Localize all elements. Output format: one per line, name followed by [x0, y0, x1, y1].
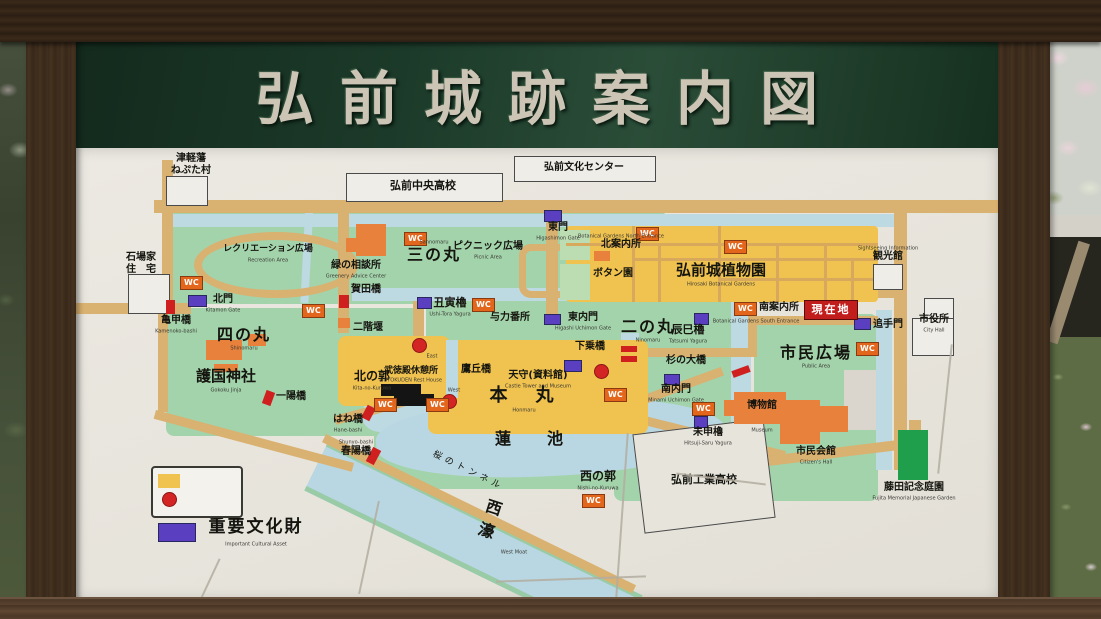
greenery-center-building: [356, 224, 386, 256]
nikaizeki-marker: [338, 318, 350, 328]
greenery-center-building: [346, 238, 358, 252]
sublabel-kamenokobashi: Kamenoko-bashi: [155, 328, 197, 334]
bridge-marker-gejobashi: [621, 346, 637, 352]
label-gejobashi: 下乗橋: [575, 341, 605, 353]
sublabel-museum: Museum: [751, 427, 772, 433]
sublabel-citizens-hall: Citizen's Hall: [800, 459, 833, 465]
sublabel-greenery-center: Greenery Advice Center: [326, 273, 386, 279]
sublabel-west-booth: West: [448, 387, 460, 393]
sublabel-hitsujisaru: Hitsuji-Saru Yagura: [684, 440, 732, 446]
label-higashimon: 東門: [548, 222, 568, 234]
wc-marker: WC: [426, 398, 449, 412]
label-hitsujisaru: 未申櫓: [693, 427, 723, 439]
label-otemon: 追手門: [873, 319, 903, 331]
sublabel-gokoku-shrine: Gokoku Jinja: [211, 387, 242, 393]
photo-of-map-sign: 弘前城跡案内図: [0, 0, 1101, 619]
legend-ticket-swatch: [162, 492, 177, 507]
wc-marker: WC: [856, 342, 879, 356]
sublabel-shinomaru: Shinomaru: [230, 345, 257, 351]
museum-building: [724, 400, 738, 416]
label-ichiyobashi: 一陽橋: [276, 391, 306, 403]
sublabel-kitamon: Kitamon Gate: [206, 307, 241, 313]
sign-title: 弘前城跡案内図: [230, 52, 844, 136]
sublabel-honmaru: Honmaru: [512, 407, 535, 413]
wc-marker: WC: [604, 388, 627, 402]
wc-marker: WC: [472, 298, 495, 312]
sublabel-ushitora: Ushi-Tora Yagura: [429, 311, 470, 317]
bridge-marker-kamenoko: [166, 300, 175, 314]
sublabel-west-moat: West Moat: [501, 549, 527, 555]
wood-beam-bottom: [0, 597, 1101, 619]
bridge-marker-gejobashi: [621, 356, 637, 362]
sublabel-picnic: Picnic Area: [474, 254, 502, 260]
panel-crack: [937, 344, 953, 473]
wc-marker: WC: [734, 302, 757, 316]
label-ushitora: 丑寅櫓: [434, 297, 467, 310]
label-tatsumi: 辰巳櫓: [672, 324, 705, 337]
road-top: [154, 200, 998, 213]
wc-marker: WC: [180, 276, 203, 290]
label-public-square: 市民広場: [780, 344, 852, 362]
wc-marker: WC: [582, 494, 605, 508]
label-shinomaru: 四の丸: [217, 326, 271, 344]
label-higashi-uchimon: 東内門: [568, 312, 598, 324]
cherry-blossoms: [1046, 28, 1101, 218]
label-museum: 博物館: [747, 400, 777, 412]
wc-marker: WC: [692, 402, 715, 416]
label-tenshu: 天守(資料館): [508, 370, 567, 382]
citizens-hall-building: [820, 406, 848, 432]
gate-marker-higashi-uchimon: [544, 314, 561, 325]
neputa-village-box: [166, 176, 208, 206]
label-nishinokuruwa: 西の郭: [580, 470, 616, 484]
gate-marker-higashimon: [544, 210, 562, 222]
garden-path: [776, 244, 779, 302]
legend-cultural-label: 重要文化財: [209, 518, 304, 538]
label-kadabashi: 賀田橋: [351, 284, 381, 296]
label-greenery-center: 緑の相談所: [331, 260, 381, 272]
label-nikaizeki: 二階堰: [353, 322, 383, 334]
garden-path: [824, 244, 827, 302]
background-grass: [1046, 337, 1101, 619]
wc-marker: WC: [724, 240, 747, 254]
background-structure-edge: [1046, 215, 1101, 237]
label-shunyobashi: 春陽橋: [341, 446, 371, 458]
bridge-marker-kadabashi: [339, 295, 349, 308]
sublabel-public-square: Public Area: [802, 363, 830, 369]
wood-post-left: [26, 30, 76, 619]
sublabel-recreation: Recreation Area: [248, 257, 288, 263]
label-minami-uchimon: 南内門: [661, 384, 691, 396]
label-north-info: 北案内所: [601, 239, 641, 251]
label-citizens-hall: 市民会館: [796, 446, 836, 458]
label-butokuden: 武徳殿休憩所: [384, 366, 438, 376]
sublabel-hanebashi: Hane-bashi: [334, 427, 363, 433]
label-hanebashi: はね橋: [333, 414, 363, 426]
title-banner: 弘前城跡案内図: [76, 40, 998, 148]
label-cityhall: 市役所: [919, 314, 949, 326]
yagura-marker-ushitora: [417, 297, 432, 309]
label-south-info: 南案内所: [759, 302, 799, 314]
sublabel-higashimon: Higashimon Gate: [536, 235, 580, 241]
legend-cultural-swatch: [158, 523, 196, 542]
ishiba-house-box: [128, 274, 170, 314]
label-lotus-pond: 蓮 池: [495, 430, 573, 448]
fujita-garden-area: [898, 430, 928, 480]
label-yoriki: 与力番所: [490, 312, 530, 324]
label-ishiba-house: 石場家 住 宅: [126, 252, 156, 275]
label-ninomaru: 二の丸: [621, 318, 675, 336]
legend-cultural-sub: Important Cultural Asset: [225, 541, 287, 547]
sublabel-kitanokuruwa: Kita-no-Kuruwa: [353, 385, 392, 391]
sublabel-minami-uchimon: Minami Uchimon Gate: [648, 397, 704, 403]
north-info-building: [594, 251, 610, 261]
label-gokoku-shrine: 護国神社: [196, 368, 256, 385]
sublabel-ninomaru: Ninomaru: [636, 337, 661, 343]
label-honmaru: 本 丸: [490, 386, 559, 407]
wood-post-right: [998, 30, 1050, 619]
label-takaokabashi: 鷹丘橋: [461, 364, 491, 376]
wc-marker: WC: [374, 398, 397, 412]
sublabel-cityhall: City Hall: [923, 327, 944, 333]
label-botan-garden: ボタン園: [593, 268, 633, 280]
label-recreation: レクリエーション広場: [223, 244, 313, 254]
garden-path: [658, 244, 661, 302]
faded-area: [844, 370, 878, 430]
sublabel-higashi-uchimon: Higashi Uchimon Gate: [555, 325, 611, 331]
map-panel: WC WC WC WC WC WC WC WC WC WC WC WC WC: [76, 148, 998, 600]
sublabel-shunyobashi: Shunyo-bashi: [339, 439, 373, 445]
ticket-booth-east: [412, 338, 427, 353]
label-kitamon: 北門: [213, 294, 233, 306]
label-neputa-village: 津軽藩 ねぷた村: [171, 153, 211, 176]
sublabel-botanical-garden: Hirosaki Botanical Gardens: [687, 281, 755, 287]
wc-marker: WC: [302, 304, 325, 318]
label-botanical-garden: 弘前城植物園: [676, 262, 766, 279]
sublabel-fujita-garden: Fujita Memorial Japanese Garden: [872, 495, 955, 501]
sublabel-tatsumi: Tatsumi Yagura: [669, 338, 707, 344]
panel-crack: [193, 558, 220, 600]
label-picnic: ピクニック広場: [453, 241, 523, 253]
label-bunka-center: 弘前文化センター: [544, 162, 624, 174]
wood-beam-top: [0, 0, 1101, 42]
label-fujita-garden: 藤田記念庭園: [884, 482, 944, 494]
garden-patch-2: [560, 264, 590, 300]
gate-marker-kitamon: [188, 295, 207, 307]
kankokan-box: [873, 264, 903, 290]
sublabel-butokuden: BUTOKUDEN Rest House: [380, 377, 442, 383]
label-kamenokobashi: 亀甲橋: [161, 315, 191, 327]
citizens-hall-building: [780, 400, 820, 444]
sublabel-east-booth: East: [427, 353, 438, 359]
label-chuo-highschool: 弘前中央高校: [390, 180, 456, 193]
legend-payzone-swatch: [158, 474, 180, 488]
label-sugi-ohashi: 杉の大橋: [666, 355, 706, 367]
you-are-here-badge: 現在地: [804, 300, 858, 320]
sublabel-nishinokuruwa: Nishi-no-Kuruwa: [577, 485, 618, 491]
ticket-booth-gejobashi: [594, 364, 609, 379]
label-kankokan: 観光館: [873, 251, 903, 263]
sublabel-south-info: Botanical Gardens South Entrance: [713, 318, 800, 324]
